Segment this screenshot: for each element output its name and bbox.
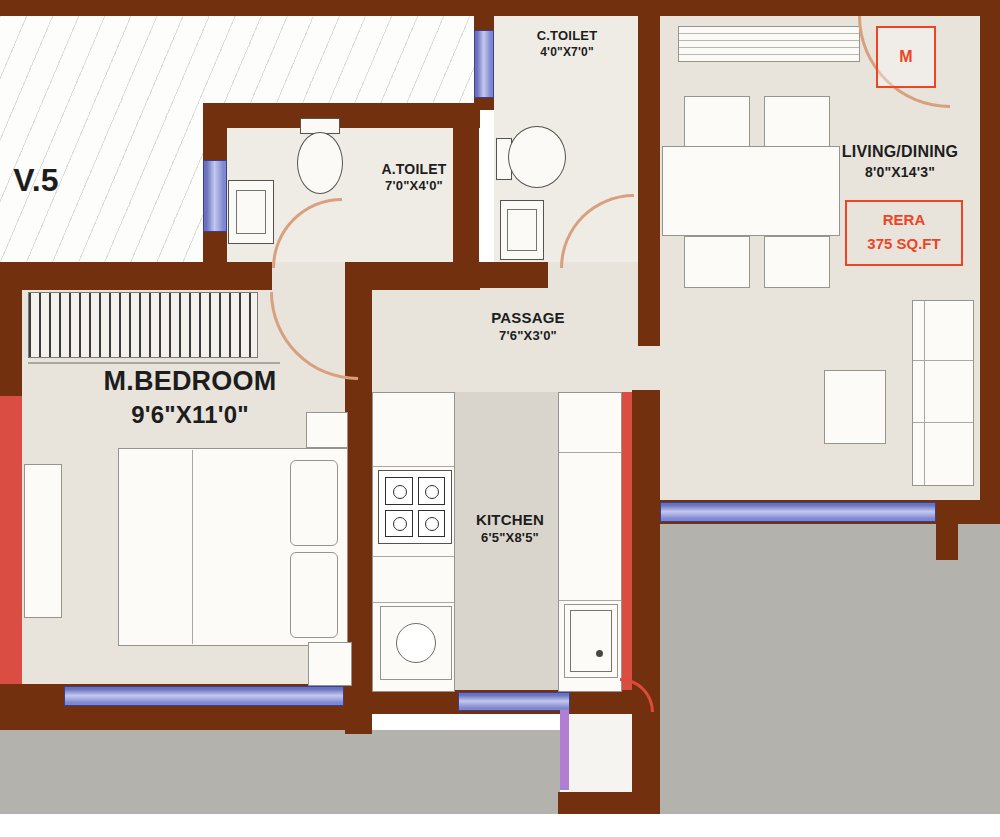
stove-burner xyxy=(385,510,413,538)
window-bedroom xyxy=(64,686,344,706)
room-name: M.BEDROOM xyxy=(55,364,325,399)
toilet-wc xyxy=(508,126,566,188)
room-name: KITCHEN xyxy=(440,510,580,530)
sofa-cushion-line xyxy=(913,422,973,423)
counter-line xyxy=(373,466,454,467)
bedside-table xyxy=(308,642,352,686)
counter-line xyxy=(373,556,454,557)
dining-chair xyxy=(684,236,750,288)
sofa-cushion-line xyxy=(913,360,973,361)
wall xyxy=(0,262,272,290)
kitchen-sink-basin xyxy=(570,610,612,672)
rera-line2: 375 SQ.FT xyxy=(847,232,961,256)
room-label-living-dining: LIVING/DINING 8'0"X14'3" xyxy=(812,142,988,181)
rera-line1: RERA xyxy=(847,208,961,232)
exterior-bottom-left xyxy=(0,730,560,814)
duct-floor xyxy=(569,708,632,794)
wardrobe xyxy=(28,292,258,358)
stove-burner xyxy=(385,477,413,505)
room-name: C.TOILET xyxy=(494,28,640,45)
main-door-letter: M xyxy=(899,48,912,66)
room-name: A.TOILET xyxy=(352,160,476,178)
wall xyxy=(205,103,480,128)
room-label-a-toilet: A.TOILET 7'0"X4'0" xyxy=(352,160,476,195)
wall xyxy=(474,96,494,110)
wall xyxy=(453,262,548,288)
exterior-right xyxy=(656,524,1000,814)
room-name: LIVING/DINING xyxy=(812,142,988,163)
counter-line xyxy=(373,602,454,603)
wall xyxy=(632,390,660,692)
sink-drain xyxy=(596,650,603,657)
room-dims: 4'0"X7'0" xyxy=(494,45,640,61)
rera-box: RERA 375 SQ.FT xyxy=(845,200,963,266)
stove-burner xyxy=(418,477,446,505)
wall xyxy=(203,103,227,163)
wall xyxy=(0,262,22,396)
pillow xyxy=(290,460,338,546)
window-kitchen xyxy=(458,692,570,711)
main-door-marker: M xyxy=(876,26,936,88)
wall xyxy=(0,0,1000,16)
window-a-toilet xyxy=(203,160,227,232)
unit-label-text: V.5 xyxy=(13,162,59,198)
room-name: PASSAGE xyxy=(448,308,608,328)
side-table xyxy=(824,370,886,444)
dining-chair xyxy=(764,236,830,288)
dining-chair xyxy=(764,96,830,148)
window-living xyxy=(660,502,936,522)
room-dims: 8'0"X14'3" xyxy=(812,163,988,181)
passage-living-opening xyxy=(638,346,662,390)
crockery-cabinet xyxy=(678,26,860,62)
dining-chair xyxy=(684,96,750,148)
sofa xyxy=(912,300,974,486)
unit-label: V.5 xyxy=(0,160,78,202)
room-label-passage: PASSAGE 7'6"X3'0" xyxy=(448,308,608,344)
shaft-strip-left xyxy=(0,396,22,688)
wall xyxy=(980,0,1000,524)
shaft-strip-kitchen xyxy=(622,392,632,692)
pillow xyxy=(290,552,338,638)
room-dims: 7'0"X4'0" xyxy=(352,178,476,195)
wall xyxy=(558,792,660,814)
room-label-kitchen: KITCHEN 6'5"X8'5" xyxy=(440,510,580,546)
kitchen-basin-bowl xyxy=(396,623,436,663)
wall xyxy=(638,16,660,346)
toilet-wc xyxy=(297,132,343,194)
dresser xyxy=(24,464,62,618)
washbasin-bowl xyxy=(507,209,537,251)
window-c-toilet xyxy=(474,30,494,98)
room-label-m-bedroom: M.BEDROOM 9'6"X11'0" xyxy=(55,364,325,430)
sofa-back-line xyxy=(924,301,925,485)
room-dims: 6'5"X8'5" xyxy=(440,530,580,547)
floor-plan: M V.5 C.TOILET 4'0"X7'0" A.TOILET 7'0"X4… xyxy=(0,0,1000,837)
wall xyxy=(936,500,958,560)
washbasin-bowl xyxy=(236,190,266,234)
bed-sheet-line xyxy=(192,450,193,644)
adjacent-unit-hatch-left xyxy=(0,16,205,262)
counter-line xyxy=(559,452,621,453)
duct-strip xyxy=(560,710,569,790)
room-label-c-toilet: C.TOILET 4'0"X7'0" xyxy=(494,28,640,60)
counter-line xyxy=(559,600,621,601)
room-dims: 9'6"X11'0" xyxy=(55,399,325,430)
room-dims: 7'6"X3'0" xyxy=(448,328,608,345)
